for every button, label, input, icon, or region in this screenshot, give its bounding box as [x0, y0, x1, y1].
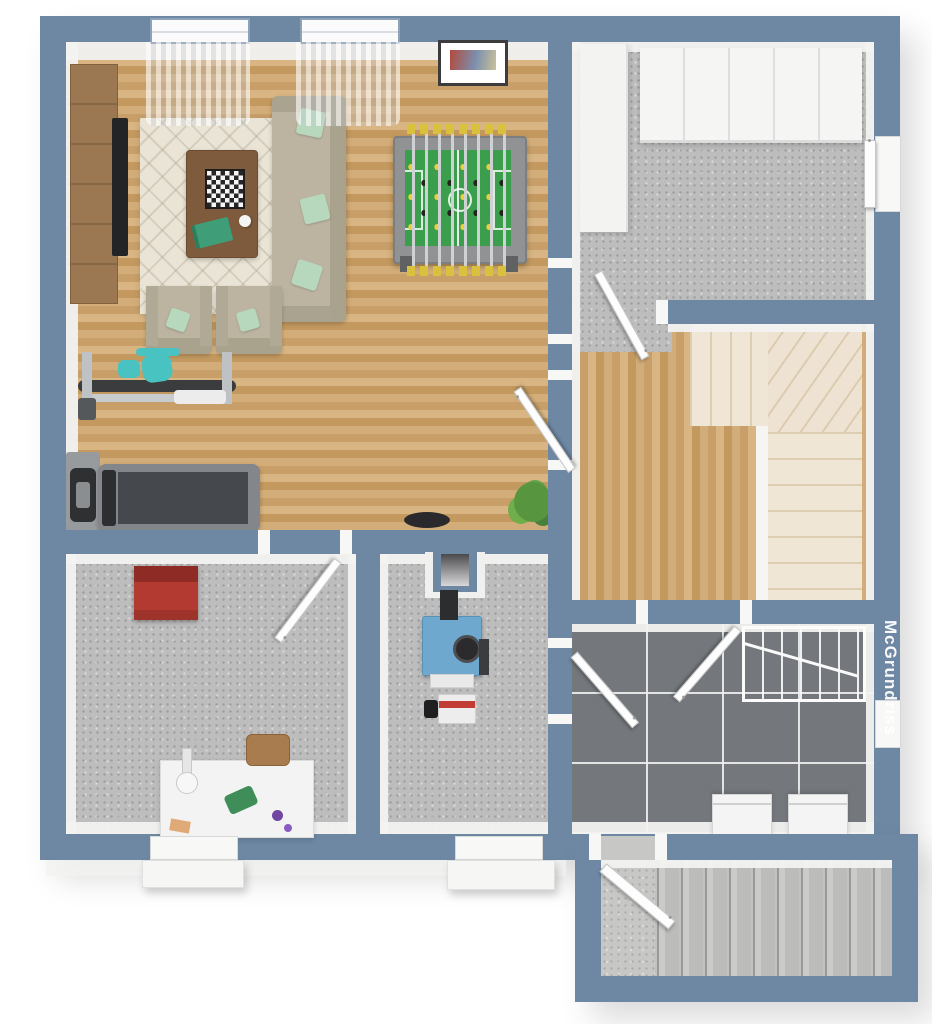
- pillow: [236, 308, 261, 333]
- wardrobe-cabinets: [640, 48, 862, 143]
- appliance-seam: [713, 803, 771, 805]
- wall-hall-laundry: [740, 600, 874, 624]
- wall-storage-hall: [668, 300, 874, 324]
- door-jamb: [548, 334, 572, 344]
- wall-face: [866, 624, 874, 834]
- chimney: [433, 548, 477, 592]
- burner-stripe: [439, 701, 475, 708]
- watermark: McGrundriss: [874, 582, 900, 774]
- sofa: [272, 96, 346, 322]
- sofa-backrest: [330, 96, 346, 322]
- door-jamb: [740, 600, 752, 624]
- machine-weight: [78, 398, 96, 420]
- foosball-handles: [407, 266, 511, 276]
- door-leaf-storage-side: [864, 140, 876, 208]
- appliance-seam: [789, 803, 847, 805]
- window: [150, 18, 250, 44]
- armchair-armrest: [270, 286, 282, 346]
- dark-bowl: [404, 512, 450, 528]
- staircase-lower-run: [768, 432, 862, 602]
- curtain: [296, 42, 400, 126]
- staircase-winder-corner: [768, 320, 862, 432]
- book: [191, 217, 234, 249]
- burner-unit: [438, 694, 476, 724]
- door-jamb: [258, 530, 270, 554]
- door-jamb: [548, 258, 572, 268]
- machine-bench: [174, 390, 226, 404]
- staircase-stringer: [756, 426, 768, 602]
- chimney-flue: [441, 554, 469, 586]
- entrance-gap-landing: [601, 836, 655, 860]
- machine-backpad: [118, 360, 140, 378]
- door-jamb: [636, 600, 648, 624]
- machine-seat: [140, 352, 174, 384]
- picture-art: [450, 50, 496, 70]
- gem-stone: [284, 824, 292, 832]
- wall-living-workshop: [40, 530, 270, 554]
- workshop-exterior-door: [150, 836, 238, 860]
- wall-divider-v1: [548, 724, 572, 834]
- door-jamb: [589, 834, 601, 860]
- armchair-left: [146, 286, 212, 354]
- chessboard: [205, 169, 245, 209]
- wall-workshop-boiler: [356, 554, 380, 834]
- decor-ball: [239, 215, 251, 227]
- burner-motor: [424, 700, 438, 718]
- armchair-armrest: [146, 286, 158, 346]
- drying-rack: [742, 626, 866, 702]
- door-jamb: [548, 714, 572, 724]
- window: [300, 18, 400, 44]
- foosball-rods: [407, 126, 511, 274]
- boiler: [422, 616, 482, 676]
- wall-face: [380, 822, 548, 834]
- wall-face: [348, 554, 356, 834]
- wall-laundry-entrance: [655, 834, 900, 860]
- exercise-machine: [78, 350, 236, 438]
- wall-face: [380, 554, 388, 834]
- foosball-handles: [407, 124, 511, 134]
- flue-pipe: [440, 590, 458, 620]
- boiler-door-step: [447, 860, 555, 890]
- gem-stone: [272, 810, 283, 821]
- armchair-armrest: [200, 286, 212, 346]
- wall-face: [668, 324, 874, 332]
- stool: [246, 734, 290, 766]
- boiler-port: [453, 635, 481, 663]
- wall-face: [572, 300, 580, 600]
- tool-chest: [134, 566, 198, 620]
- hand-tool-head: [176, 772, 198, 794]
- door-jamb: [655, 834, 667, 860]
- wall-divider-v1: [548, 42, 572, 268]
- foosball-table: [393, 136, 527, 264]
- tool-chest-drawer: [134, 610, 198, 620]
- curtain: [146, 42, 250, 126]
- door-jamb: [548, 638, 572, 648]
- treadmill: [98, 464, 260, 532]
- pillow: [299, 193, 331, 225]
- boiler-shelf: [430, 674, 474, 688]
- armchair-armrest: [216, 286, 228, 346]
- coffee-table: [186, 150, 258, 258]
- device-screen: [76, 482, 90, 508]
- workshop-door-step: [142, 860, 244, 888]
- sideboard: [70, 64, 118, 304]
- exterior-staircase: [655, 860, 892, 976]
- machine-post: [82, 352, 92, 404]
- wall-face: [601, 860, 892, 868]
- door-jamb: [340, 530, 352, 554]
- storage-side-door: [875, 136, 901, 212]
- tool-chest-lid: [134, 566, 198, 582]
- pillow: [165, 307, 191, 333]
- wall-face: [866, 300, 874, 600]
- wall-picture: [438, 40, 508, 86]
- staircase-upper-run: [690, 320, 768, 426]
- door-jamb: [656, 300, 668, 324]
- tall-cabinet: [580, 44, 628, 232]
- wall-face: [66, 554, 76, 834]
- wall-divider-v1: [548, 470, 572, 648]
- wall-device: [70, 468, 96, 522]
- treadmill-belt: [118, 472, 248, 524]
- boiler-exterior-door: [455, 836, 543, 860]
- wall-face: [572, 42, 580, 300]
- armchair-right: [216, 286, 282, 354]
- tv: [112, 118, 128, 256]
- potted-plant: [514, 482, 552, 522]
- treadmill-console: [102, 470, 116, 526]
- door-jamb: [548, 370, 572, 380]
- pillow: [291, 259, 324, 292]
- machine-handle: [136, 348, 180, 356]
- boiler-side-panel: [479, 639, 489, 675]
- floor-plan: McGrundriss: [0, 0, 932, 1024]
